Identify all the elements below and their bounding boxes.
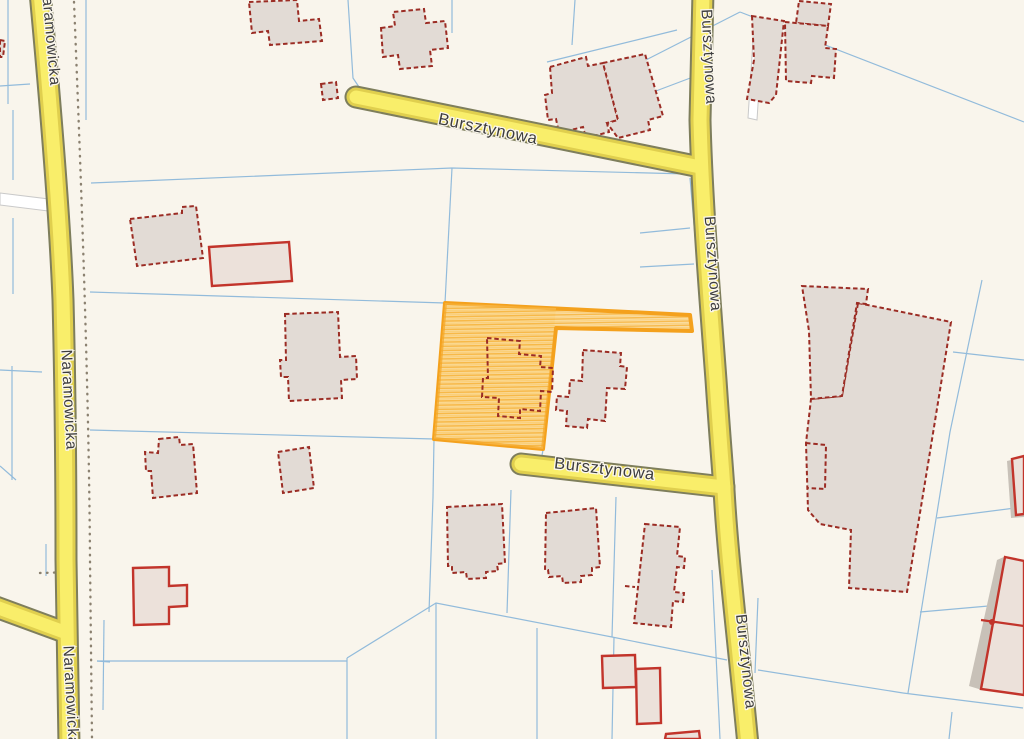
boundary-vertex-dot	[989, 619, 995, 625]
building	[278, 447, 314, 493]
building	[636, 668, 661, 724]
building	[209, 242, 292, 286]
highlighted-parcel-dense-hatch	[434, 303, 556, 449]
building	[447, 504, 505, 579]
building	[602, 655, 636, 688]
map-canvas[interactable]: Naramowicka Naramowicka Naramowicka Burs…	[0, 0, 1024, 739]
map-svg[interactable]: Naramowicka Naramowicka Naramowicka Burs…	[0, 0, 1024, 739]
building	[545, 508, 600, 583]
building	[321, 82, 338, 100]
building	[796, 1, 831, 26]
